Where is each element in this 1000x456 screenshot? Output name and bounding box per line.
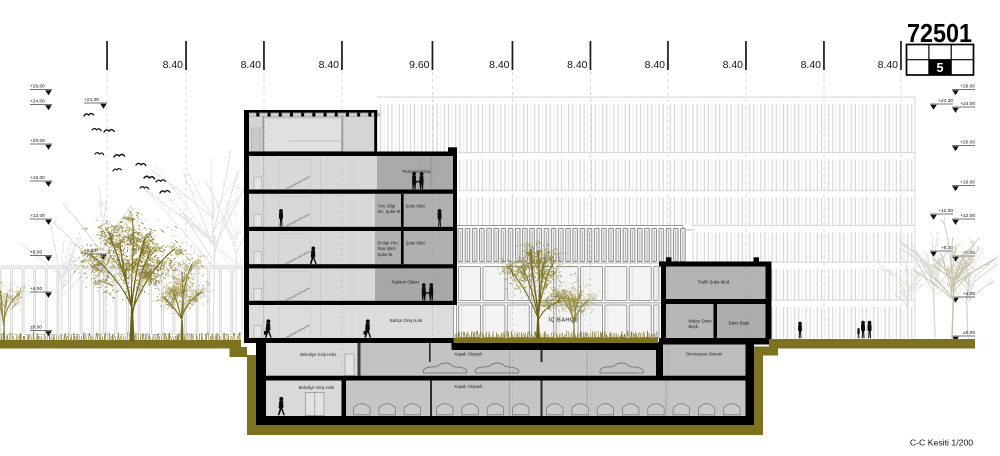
svg-text:+12.30: +12.30 bbox=[938, 208, 953, 214]
svg-text:Maliye Daire: Maliye Daire bbox=[689, 319, 713, 324]
svg-text:+4.00: +4.00 bbox=[963, 291, 975, 297]
svg-text:+16.00: +16.00 bbox=[960, 180, 975, 186]
svg-text:Başk.: Başk. bbox=[689, 324, 699, 329]
svg-text:Kapalı Otopark: Kapalı Otopark bbox=[455, 351, 484, 356]
svg-text:8.40: 8.40 bbox=[801, 59, 822, 71]
svg-text:+24.30: +24.30 bbox=[938, 98, 953, 104]
svg-text:+24.00: +24.00 bbox=[30, 99, 45, 105]
svg-text:Yön. Bilgi: Yön. Bilgi bbox=[378, 204, 396, 209]
svg-text:Belediye Giriş Holü: Belediye Giriş Holü bbox=[299, 385, 335, 390]
svg-text:8.40: 8.40 bbox=[319, 59, 340, 71]
svg-text:8.40: 8.40 bbox=[723, 59, 744, 71]
svg-text:Otomasyon Sistemi: Otomasyon Sistemi bbox=[686, 351, 722, 356]
svg-text:±0.00: ±0.00 bbox=[963, 330, 975, 336]
svg-text:+12.00: +12.00 bbox=[30, 213, 45, 219]
svg-text:8.40: 8.40 bbox=[567, 59, 588, 71]
svg-text:Şube Müd.: Şube Müd. bbox=[406, 204, 426, 209]
svg-text:+8.30: +8.30 bbox=[941, 245, 953, 251]
svg-text:Şube Müd.: Şube Müd. bbox=[406, 241, 426, 246]
svg-text:8.40: 8.40 bbox=[163, 59, 184, 71]
svg-text:Şube M.: Şube M. bbox=[378, 252, 394, 257]
svg-text:Trafik Şube Müd.: Trafik Şube Müd. bbox=[698, 280, 731, 285]
svg-text:±0.00: ±0.00 bbox=[30, 325, 42, 331]
svg-text:8.40: 8.40 bbox=[645, 59, 666, 71]
svg-text:İÇ BAHÇE: İÇ BAHÇE bbox=[549, 317, 579, 324]
svg-text:8.40: 8.40 bbox=[878, 59, 899, 71]
svg-text:+24.30: +24.30 bbox=[84, 97, 99, 103]
svg-text:+12.00: +12.00 bbox=[960, 213, 975, 219]
svg-text:Toplantı Odası: Toplantı Odası bbox=[391, 280, 419, 285]
svg-text:8.40: 8.40 bbox=[489, 59, 510, 71]
svg-text:+26.00: +26.00 bbox=[30, 84, 45, 90]
svg-text:+20.00: +20.00 bbox=[960, 140, 975, 146]
svg-text:+4.00: +4.00 bbox=[30, 286, 42, 292]
svg-text:Sis. Şube M.: Sis. Şube M. bbox=[378, 209, 402, 214]
svg-text:8.40: 8.40 bbox=[241, 59, 262, 71]
svg-text:Bahçe Giriş Holü: Bahçe Giriş Holü bbox=[390, 318, 423, 323]
svg-text:C-C Kesiti 1/200: C-C Kesiti 1/200 bbox=[910, 438, 973, 448]
svg-text:İmar İşleri: İmar İşleri bbox=[378, 246, 396, 251]
svg-text:Belediye Giriş Holü: Belediye Giriş Holü bbox=[300, 352, 336, 357]
svg-text:+26.00: +26.00 bbox=[960, 84, 975, 90]
svg-text:Kapalı Otopark: Kapalı Otopark bbox=[455, 384, 484, 389]
svg-text:+16.00: +16.00 bbox=[30, 175, 45, 181]
svg-text:9.60: 9.60 bbox=[409, 59, 430, 71]
svg-text:+20.00: +20.00 bbox=[30, 138, 45, 144]
svg-text:Personel Girişi: Personel Girişi bbox=[403, 169, 431, 174]
svg-text:+8.00: +8.00 bbox=[30, 250, 42, 256]
svg-text:+24.00: +24.00 bbox=[960, 101, 975, 107]
svg-text:72501: 72501 bbox=[907, 18, 972, 48]
svg-text:Daire Başk.: Daire Başk. bbox=[729, 321, 751, 326]
svg-text:Emlak Yön.: Emlak Yön. bbox=[378, 241, 399, 246]
svg-text:5: 5 bbox=[937, 61, 944, 75]
